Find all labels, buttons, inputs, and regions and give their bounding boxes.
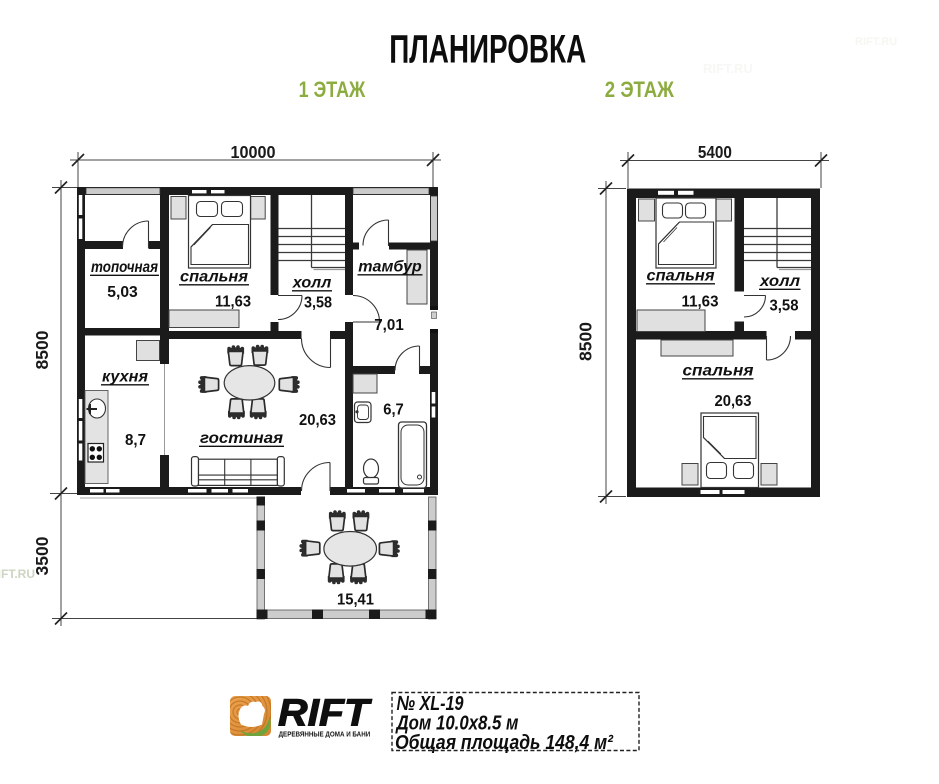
svg-text:холл: холл — [292, 275, 332, 292]
svg-text:5400: 5400 — [698, 142, 732, 162]
svg-text:топочная: топочная — [91, 259, 158, 276]
svg-text:5,03: 5,03 — [107, 284, 138, 301]
svg-text:Общая площадь 148,4 м²: Общая площадь 148,4 м² — [395, 731, 614, 754]
svg-text:8500: 8500 — [32, 330, 52, 369]
svg-text:спальня: спальня — [683, 363, 755, 380]
svg-text:20,63: 20,63 — [299, 412, 336, 429]
svg-text:холл: холл — [759, 273, 800, 290]
svg-text:7,01: 7,01 — [374, 317, 404, 334]
svg-text:20,63: 20,63 — [715, 393, 752, 410]
svg-text:1 ЭТАЖ: 1 ЭТАЖ — [299, 77, 366, 102]
svg-text:10000: 10000 — [231, 142, 276, 162]
svg-text:8500: 8500 — [576, 322, 596, 361]
svg-text:15,41: 15,41 — [337, 592, 374, 609]
svg-text:гостиная: гостиная — [200, 430, 284, 447]
svg-text:11,63: 11,63 — [682, 294, 719, 311]
svg-text:RIFT: RIFT — [278, 692, 372, 734]
svg-text:тамбур: тамбур — [358, 259, 422, 276]
svg-text:3,58: 3,58 — [770, 298, 799, 315]
svg-text:3500: 3500 — [32, 536, 52, 575]
svg-text:ПЛАНИРОВКА: ПЛАНИРОВКА — [389, 28, 586, 72]
svg-text:11,63: 11,63 — [215, 294, 251, 311]
svg-text:8,7: 8,7 — [125, 432, 146, 449]
svg-text:RIFT.RU: RIFT.RU — [703, 61, 753, 76]
svg-text:кухня: кухня — [102, 369, 149, 386]
svg-text:6,7: 6,7 — [383, 402, 404, 419]
svg-text:RIFT.RU: RIFT.RU — [855, 36, 897, 48]
svg-text:3,58: 3,58 — [304, 295, 332, 312]
svg-text:ДЕРЕВЯННЫЕ ДОМА И БАНИ: ДЕРЕВЯННЫЕ ДОМА И БАНИ — [279, 729, 371, 738]
svg-text:2 ЭТАЖ: 2 ЭТАЖ — [605, 77, 674, 102]
svg-text:спальня: спальня — [180, 269, 249, 286]
svg-text:RIFT.RU: RIFT.RU — [0, 567, 35, 581]
svg-text:спальня: спальня — [647, 268, 716, 285]
